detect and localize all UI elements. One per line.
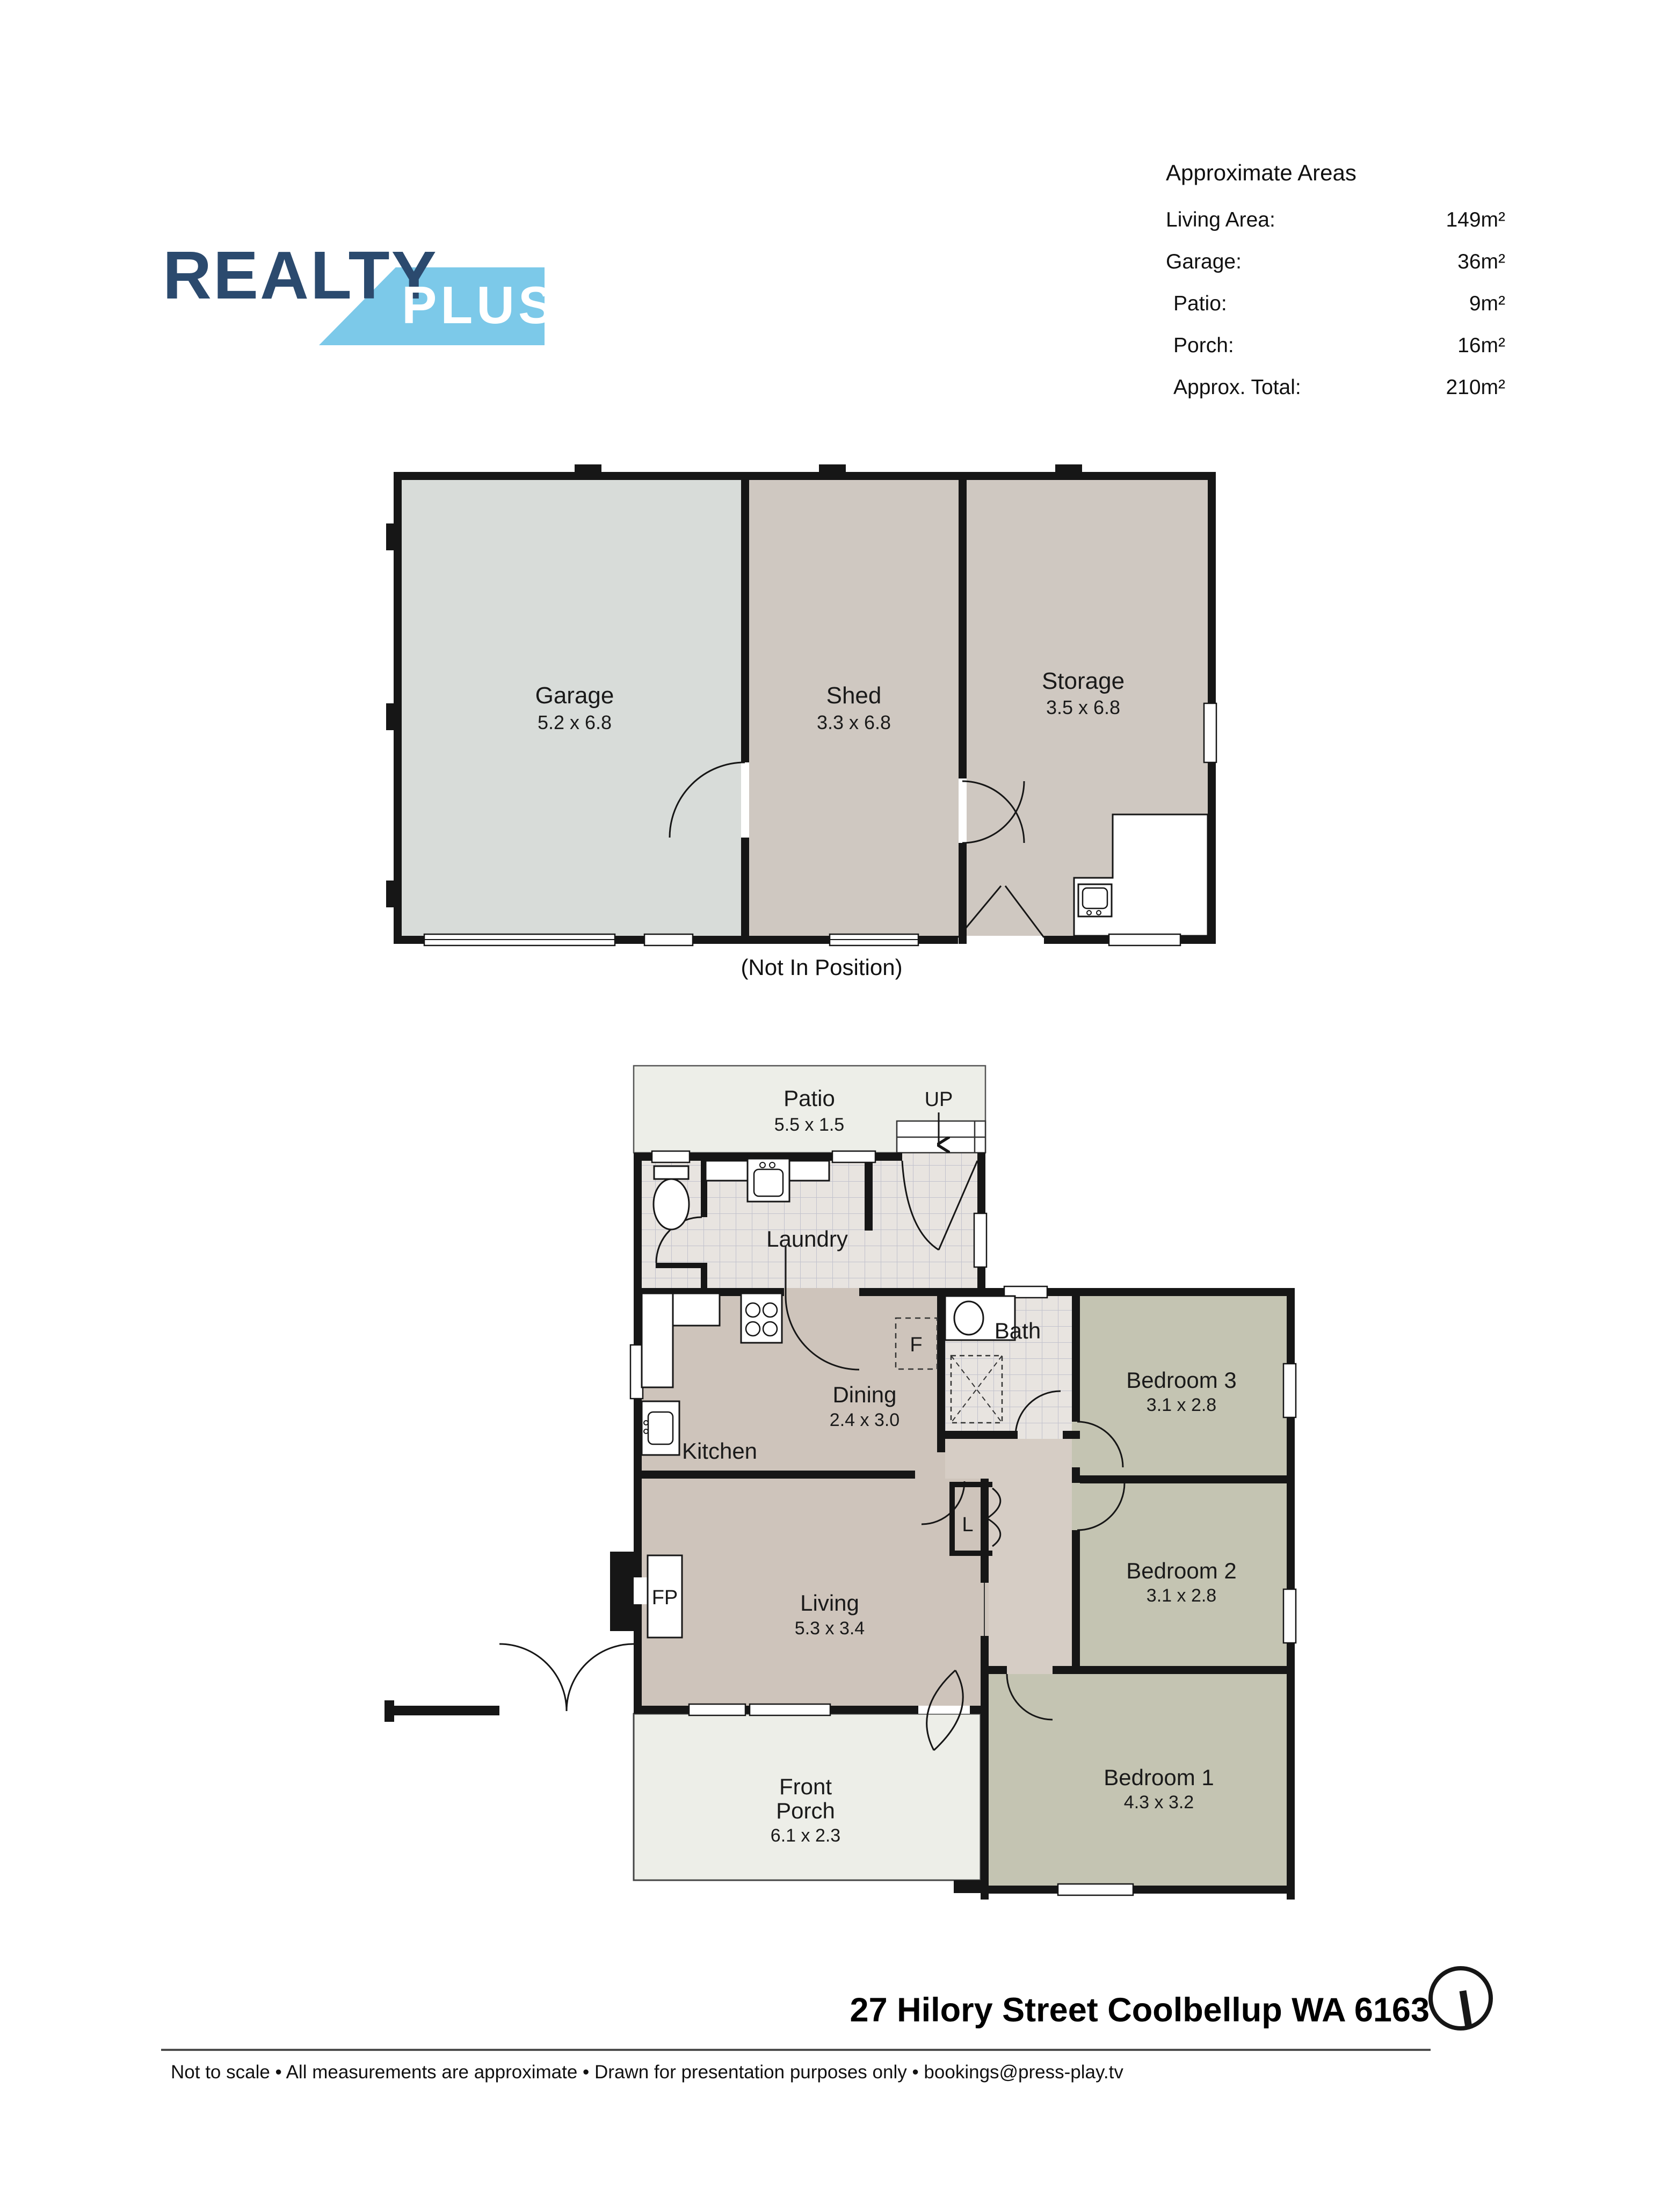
areas-value: 16m² bbox=[1457, 334, 1505, 358]
kitchen-sink-icon bbox=[642, 1401, 679, 1455]
areas-label: Porch: bbox=[1173, 334, 1234, 358]
fireplace-label: FP bbox=[652, 1587, 678, 1609]
areas-label: Garage: bbox=[1166, 250, 1242, 274]
room-dims-storage: 3.5 x 6.8 bbox=[1046, 696, 1120, 718]
floorplan-page: REALTY PLUS Approximate Areas Living Are… bbox=[0, 0, 1654, 2212]
room-label-storage: Storage bbox=[1042, 668, 1125, 694]
approximate-areas-panel: Approximate Areas Living Area: 149m² Gar… bbox=[1166, 160, 1505, 418]
not-in-position-caption: (Not In Position) bbox=[419, 955, 1224, 980]
laundry-trough-icon bbox=[1078, 884, 1112, 916]
room-label-laundry: Laundry bbox=[766, 1226, 848, 1251]
room-label-shed: Shed bbox=[826, 682, 882, 709]
room-label-kitchen: Kitchen bbox=[682, 1438, 757, 1464]
room-label-bed1: Bedroom 1 bbox=[1104, 1765, 1214, 1790]
toilet-icon bbox=[654, 1166, 689, 1229]
areas-row-total: Approx. Total: 210m² bbox=[1166, 376, 1505, 399]
room-dims-shed: 3.3 x 6.8 bbox=[817, 711, 891, 733]
realty-plus-logo: REALTY PLUS bbox=[163, 236, 560, 354]
room-dims-garage: 5.2 x 6.8 bbox=[538, 711, 612, 733]
linen-label: L bbox=[962, 1514, 973, 1536]
footer-divider bbox=[161, 2049, 1431, 2051]
areas-label: Approx. Total: bbox=[1173, 376, 1301, 399]
areas-row-living: Living Area: 149m² bbox=[1166, 208, 1505, 232]
room-dims-dining: 2.4 x 3.0 bbox=[830, 1410, 899, 1430]
areas-value: 36m² bbox=[1457, 250, 1505, 274]
areas-row-patio: Patio: 9m² bbox=[1166, 292, 1505, 316]
stairs-up-label: UP bbox=[925, 1088, 953, 1111]
room-label-bed3: Bedroom 3 bbox=[1126, 1367, 1236, 1393]
gate-leaf-left bbox=[499, 1644, 567, 1711]
areas-row-porch: Porch: 16m² bbox=[1166, 334, 1505, 358]
room-label-garage: Garage bbox=[535, 682, 614, 709]
areas-value: 210m² bbox=[1446, 376, 1505, 399]
stove-icon bbox=[741, 1293, 782, 1343]
compass-icon bbox=[1424, 1961, 1499, 2036]
room-dims-living: 5.3 x 3.4 bbox=[795, 1618, 865, 1639]
room-label-living: Living bbox=[800, 1590, 859, 1616]
outbuilding-floorplan: Garage 5.2 x 6.8 Shed 3.3 x 6.8 Storage … bbox=[365, 462, 1246, 1004]
areas-title: Approximate Areas bbox=[1166, 160, 1505, 186]
fridge-label: F bbox=[910, 1334, 922, 1356]
logo-realty-text: REALTY bbox=[163, 236, 438, 314]
gate-leaf-right bbox=[567, 1644, 634, 1711]
disclaimer-text: Not to scale • All measurements are appr… bbox=[171, 2062, 1123, 2083]
room-label-bath: Bath bbox=[995, 1318, 1041, 1343]
room-label-patio: Patio bbox=[784, 1086, 835, 1111]
room-dims-bed2: 3.1 x 2.8 bbox=[1147, 1585, 1216, 1606]
areas-label: Patio: bbox=[1173, 292, 1227, 316]
areas-value: 9m² bbox=[1469, 292, 1505, 316]
room-label-dining: Dining bbox=[832, 1382, 896, 1407]
areas-value: 149m² bbox=[1446, 208, 1505, 232]
areas-label: Living Area: bbox=[1166, 208, 1275, 232]
room-label-porch-line1: Front bbox=[779, 1774, 832, 1799]
room-label-porch-line2: Porch bbox=[776, 1798, 835, 1823]
room-dims-porch: 6.1 x 2.3 bbox=[771, 1825, 840, 1846]
room-label-bed2: Bedroom 2 bbox=[1126, 1558, 1236, 1583]
room-dims-patio: 5.5 x 1.5 bbox=[774, 1115, 844, 1135]
logo-plus-text: PLUS bbox=[402, 275, 557, 336]
house-floorplan: Patio 5.5 x 1.5 UP Laundry Kitchen Dinin… bbox=[365, 1052, 1332, 1933]
room-dims-bed3: 3.1 x 2.8 bbox=[1147, 1395, 1216, 1415]
property-address: 27 Hilory Street Coolbellup WA 6163 bbox=[850, 1991, 1430, 2029]
areas-row-garage: Garage: 36m² bbox=[1166, 250, 1505, 274]
room-dims-bed1: 4.3 x 3.2 bbox=[1124, 1792, 1194, 1813]
